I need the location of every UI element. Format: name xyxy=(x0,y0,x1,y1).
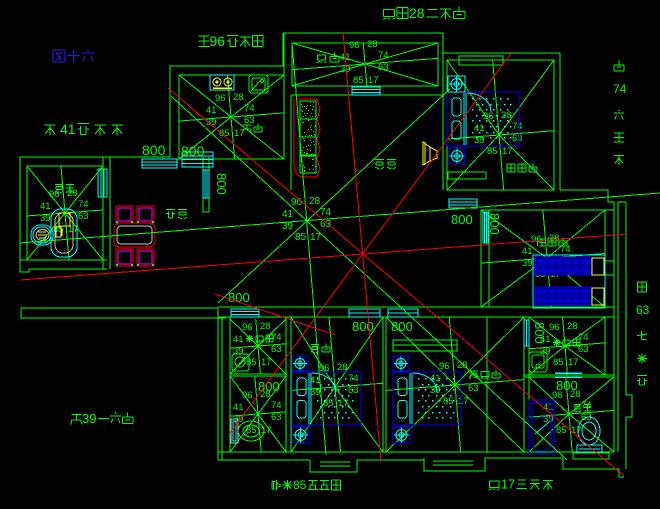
svg-text:28: 28 xyxy=(233,92,244,103)
svg-text:85: 85 xyxy=(353,75,364,86)
svg-text:17: 17 xyxy=(261,357,272,368)
svg-text:41: 41 xyxy=(233,334,244,345)
svg-text:28: 28 xyxy=(367,39,378,50)
svg-text:96: 96 xyxy=(439,361,450,372)
svg-text:800: 800 xyxy=(556,378,578,393)
svg-text:800: 800 xyxy=(214,173,229,195)
svg-text:85: 85 xyxy=(219,128,230,139)
svg-text:28: 28 xyxy=(337,362,348,373)
svg-text:96: 96 xyxy=(349,40,360,51)
svg-text:96: 96 xyxy=(215,93,226,104)
svg-text:28: 28 xyxy=(67,188,78,199)
svg-text:800: 800 xyxy=(142,142,166,158)
svg-text:17: 17 xyxy=(310,232,322,243)
svg-text:96: 96 xyxy=(549,322,560,333)
svg-text:63: 63 xyxy=(271,344,282,355)
svg-text:85: 85 xyxy=(487,146,498,157)
svg-text:39: 39 xyxy=(233,346,244,357)
svg-text:96: 96 xyxy=(210,33,226,49)
svg-text:63: 63 xyxy=(244,115,255,126)
svg-text:85: 85 xyxy=(293,478,307,492)
svg-text:39: 39 xyxy=(206,117,217,128)
svg-text:85: 85 xyxy=(553,357,564,368)
svg-text:85: 85 xyxy=(556,425,567,436)
svg-text:63: 63 xyxy=(636,303,650,317)
svg-text:96: 96 xyxy=(242,390,253,401)
svg-text:28: 28 xyxy=(409,5,425,21)
svg-text:800: 800 xyxy=(181,143,205,159)
svg-text:74: 74 xyxy=(244,103,255,114)
svg-text:74: 74 xyxy=(613,82,627,96)
svg-text:74: 74 xyxy=(271,400,282,411)
svg-text:41: 41 xyxy=(522,246,533,257)
svg-text:28: 28 xyxy=(501,110,512,121)
svg-text:39: 39 xyxy=(310,387,321,398)
svg-text:800: 800 xyxy=(451,212,473,227)
svg-text:63: 63 xyxy=(468,383,479,394)
svg-text:39: 39 xyxy=(474,135,485,146)
svg-text:41: 41 xyxy=(310,375,321,386)
svg-text:41: 41 xyxy=(233,402,244,413)
svg-text:800: 800 xyxy=(487,213,502,235)
svg-text:17: 17 xyxy=(571,425,582,436)
svg-text:41: 41 xyxy=(40,201,51,212)
svg-text:96: 96 xyxy=(49,189,60,200)
svg-text:800: 800 xyxy=(352,319,374,334)
svg-text:96: 96 xyxy=(291,197,303,208)
svg-text:74: 74 xyxy=(78,199,89,210)
svg-text:39: 39 xyxy=(82,411,96,426)
svg-text:63: 63 xyxy=(271,412,282,423)
svg-text:63: 63 xyxy=(78,211,89,222)
svg-text:28: 28 xyxy=(260,321,271,332)
svg-text:17: 17 xyxy=(501,478,515,492)
svg-text:41: 41 xyxy=(430,373,441,384)
svg-text:63: 63 xyxy=(320,219,332,230)
svg-text:85: 85 xyxy=(246,357,257,368)
svg-text:39: 39 xyxy=(522,258,533,269)
svg-text:800: 800 xyxy=(391,319,413,334)
svg-text:85: 85 xyxy=(443,396,454,407)
svg-text:74: 74 xyxy=(512,121,523,132)
svg-text:39: 39 xyxy=(340,64,351,75)
svg-text:96: 96 xyxy=(242,322,253,333)
svg-text:39: 39 xyxy=(543,414,554,425)
svg-text:28: 28 xyxy=(457,360,468,371)
svg-text:85: 85 xyxy=(246,425,257,436)
svg-text:74: 74 xyxy=(581,400,592,411)
svg-text:96: 96 xyxy=(483,111,494,122)
svg-text:17: 17 xyxy=(568,357,579,368)
svg-text:28: 28 xyxy=(567,321,578,332)
svg-text:39: 39 xyxy=(430,385,441,396)
svg-text:74: 74 xyxy=(378,50,389,61)
svg-text:17: 17 xyxy=(458,396,469,407)
svg-text:28: 28 xyxy=(309,196,321,207)
svg-text:39: 39 xyxy=(282,221,294,232)
svg-text:41: 41 xyxy=(206,105,217,116)
svg-text:800: 800 xyxy=(228,290,250,305)
svg-text:85: 85 xyxy=(295,232,307,243)
svg-text:39: 39 xyxy=(40,213,51,224)
svg-text:41: 41 xyxy=(60,121,76,137)
svg-text:17: 17 xyxy=(502,146,513,157)
svg-text:17: 17 xyxy=(368,75,379,86)
svg-text:41: 41 xyxy=(282,209,294,220)
svg-text:63: 63 xyxy=(378,62,389,73)
svg-text:800: 800 xyxy=(532,322,547,344)
svg-text:74: 74 xyxy=(320,207,332,218)
svg-text:63: 63 xyxy=(512,133,523,144)
